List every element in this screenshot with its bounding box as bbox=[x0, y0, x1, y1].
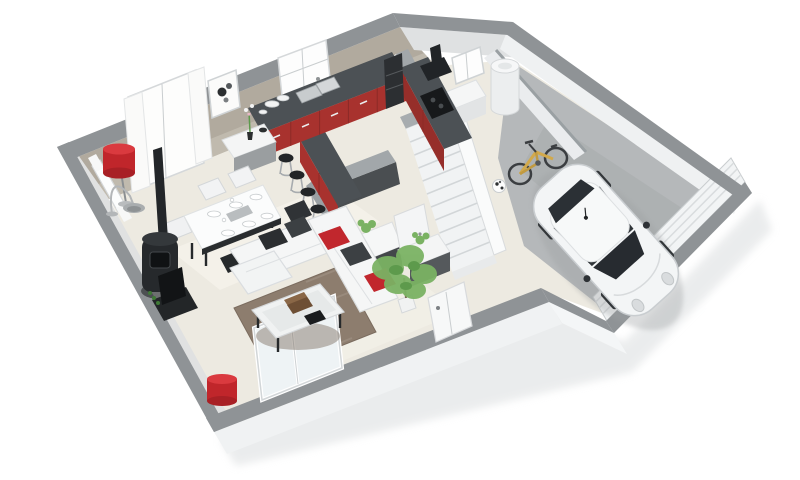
wc-door-handle bbox=[418, 232, 421, 235]
floor-plan-svg bbox=[0, 0, 800, 480]
oven-column bbox=[384, 53, 404, 109]
sideboard-deco bbox=[259, 128, 267, 133]
soccer-ball bbox=[493, 180, 506, 193]
faucet bbox=[316, 77, 320, 81]
red-table-lamp bbox=[207, 374, 237, 406]
front-door-handle bbox=[436, 306, 440, 310]
floor-plan-render bbox=[0, 0, 800, 480]
water-heater bbox=[491, 59, 519, 115]
